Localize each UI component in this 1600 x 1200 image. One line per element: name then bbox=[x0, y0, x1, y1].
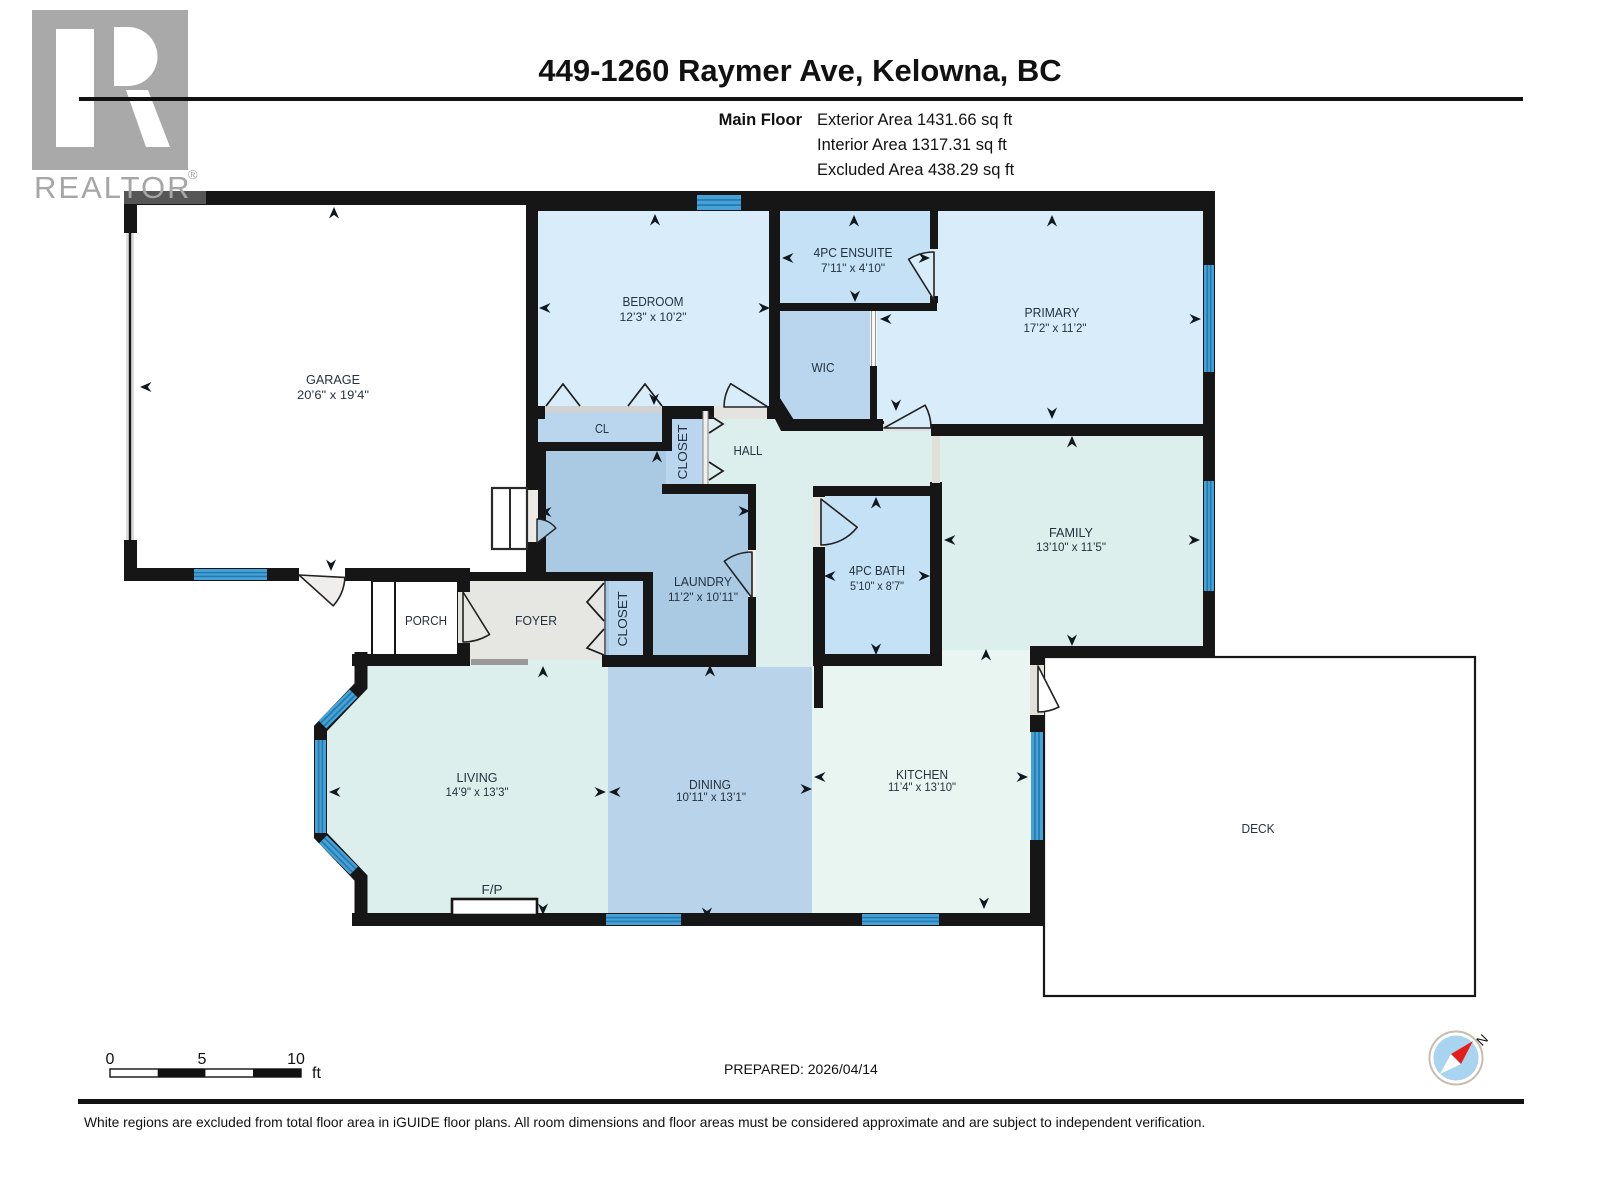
svg-text:10’11" x 13’1": 10’11" x 13’1" bbox=[676, 790, 746, 804]
svg-text:HALL: HALL bbox=[734, 443, 763, 458]
svg-text:10: 10 bbox=[287, 1051, 305, 1068]
svg-text:WIC: WIC bbox=[812, 360, 835, 375]
svg-text:®: ® bbox=[188, 167, 198, 182]
svg-text:FAMILY: FAMILY bbox=[1049, 525, 1093, 540]
svg-text:4PC ENSUITE: 4PC ENSUITE bbox=[814, 245, 893, 260]
svg-text:Interior Area 1317.31 sq ft: Interior Area 1317.31 sq ft bbox=[817, 136, 1007, 154]
svg-text:GARAGE: GARAGE bbox=[306, 372, 360, 387]
svg-text:White regions are excluded fro: White regions are excluded from total fl… bbox=[84, 1115, 1205, 1130]
svg-text:11’4" x 13’10": 11’4" x 13’10" bbox=[888, 780, 956, 794]
svg-text:13’10" x 11’5": 13’10" x 11’5" bbox=[1036, 540, 1106, 554]
svg-text:DECK: DECK bbox=[1242, 821, 1275, 836]
svg-text:F/P: F/P bbox=[482, 882, 503, 897]
svg-text:Exterior Area 1431.66 sq ft: Exterior Area 1431.66 sq ft bbox=[817, 111, 1013, 129]
svg-text:LAUNDRY: LAUNDRY bbox=[674, 574, 732, 589]
svg-text:REALTOR: REALTOR bbox=[34, 170, 192, 205]
svg-text:CL: CL bbox=[595, 421, 609, 436]
svg-text:CLOSET: CLOSET bbox=[675, 425, 690, 480]
svg-text:PRIMARY: PRIMARY bbox=[1025, 305, 1080, 320]
svg-text:14’9" x 13’3": 14’9" x 13’3" bbox=[446, 785, 509, 799]
svg-text:Excluded Area 438.29 sq ft: Excluded Area 438.29 sq ft bbox=[817, 161, 1015, 179]
svg-text:0: 0 bbox=[106, 1051, 115, 1068]
svg-text:LIVING: LIVING bbox=[457, 770, 498, 785]
svg-text:17’2" x 11’2": 17’2" x 11’2" bbox=[1024, 321, 1087, 335]
svg-text:FOYER: FOYER bbox=[515, 613, 557, 628]
svg-text:11’2" x 10’11": 11’2" x 10’11" bbox=[668, 590, 738, 604]
svg-text:Main Floor: Main Floor bbox=[719, 111, 803, 129]
svg-text:449-1260 Raymer Ave, Kelowna,: 449-1260 Raymer Ave, Kelowna, BC bbox=[538, 53, 1061, 88]
svg-text:5: 5 bbox=[198, 1051, 207, 1068]
svg-text:CLOSET: CLOSET bbox=[615, 592, 630, 647]
svg-text:12’3" x 10’2": 12’3" x 10’2" bbox=[620, 310, 687, 324]
svg-text:4PC BATH: 4PC BATH bbox=[849, 563, 905, 578]
svg-text:5’10" x 8’7": 5’10" x 8’7" bbox=[850, 579, 904, 593]
svg-text:PREPARED: 2026/04/14: PREPARED: 2026/04/14 bbox=[724, 1061, 878, 1077]
svg-text:BEDROOM: BEDROOM bbox=[623, 294, 684, 309]
svg-text:7’11" x 4’10": 7’11" x 4’10" bbox=[821, 261, 885, 275]
svg-text:PORCH: PORCH bbox=[405, 613, 447, 628]
svg-text:20’6" x 19’4": 20’6" x 19’4" bbox=[297, 388, 369, 402]
svg-text:ft: ft bbox=[312, 1065, 321, 1082]
